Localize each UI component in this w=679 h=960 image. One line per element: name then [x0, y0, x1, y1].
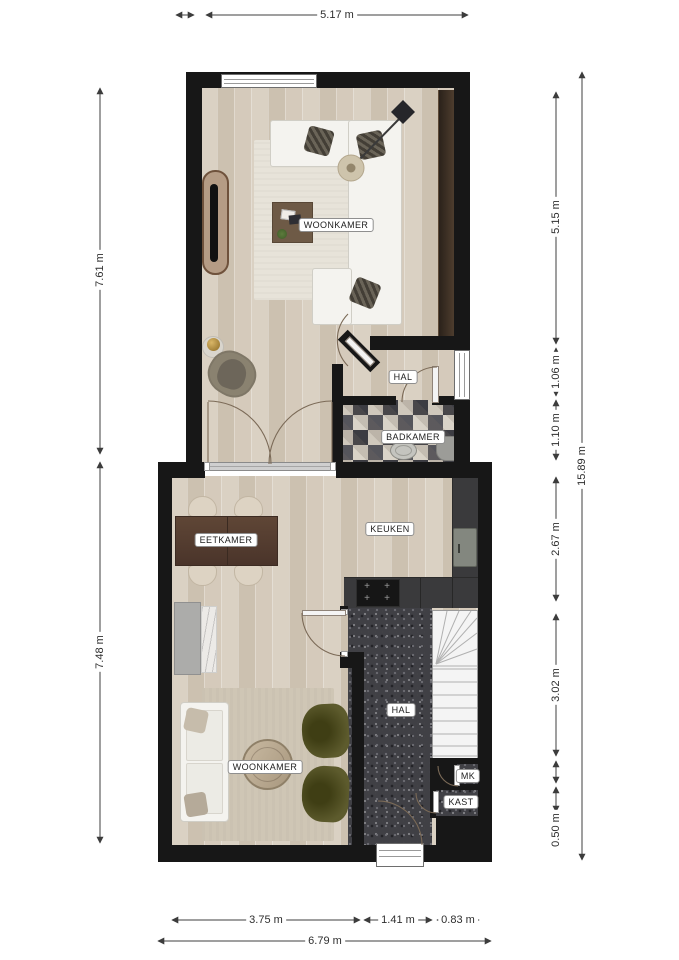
dim-right-seg-2: 1.06 m: [550, 352, 562, 392]
gold-vase: [207, 338, 220, 351]
kitchen-door-leaf: [302, 610, 346, 616]
wall-badkamer-north-left: [334, 396, 396, 405]
armchair-seat: [214, 355, 250, 392]
staircase: [432, 610, 478, 762]
room-label-woonkamer-upper: WOONKAMER: [299, 218, 374, 232]
room-label-badkamer: BADKAMER: [381, 430, 445, 444]
double-door-sill: [204, 462, 336, 471]
wall-bottom: [158, 845, 492, 862]
sink-basin: [395, 445, 412, 456]
dim-right-seg-1: 5.15 m: [550, 197, 562, 237]
window-hal: [454, 350, 470, 400]
wall-hal-top: [370, 336, 456, 350]
door-threshold-line: [379, 850, 421, 851]
wall-left-lower: [158, 462, 172, 862]
burner-icon: +: [382, 594, 392, 604]
window-pane-line: [224, 83, 314, 84]
dim-bottom-total: 6.79 m: [305, 935, 345, 947]
sofa-pillow: [183, 791, 208, 817]
dim-right-seg-5: 3.02 m: [550, 665, 562, 705]
armchair-lower: [301, 703, 351, 759]
cooktop: + + + +: [356, 579, 400, 607]
kast-door-leaf: [433, 791, 439, 813]
burner-icon: +: [362, 582, 372, 592]
sill-line: [205, 466, 335, 467]
wall-below-kast: [436, 816, 478, 845]
room-label-mk: MK: [456, 769, 480, 783]
fridge: [453, 528, 477, 567]
dim-right-total: 15.89 m: [576, 443, 588, 489]
tv-console: [202, 170, 229, 275]
corner-sofa-seat-bottom: [312, 268, 352, 325]
dim-bottom-seg-2: 1.41 m: [378, 914, 418, 926]
sofa-lower: [180, 702, 229, 822]
dim-right-seg-4: 2.67 m: [550, 519, 562, 559]
fridge-handle: [458, 544, 460, 553]
wall-right-lower: [478, 462, 492, 862]
window-pane-line: [224, 79, 314, 80]
sideboard: [174, 602, 201, 675]
burner-icon: +: [362, 594, 372, 604]
door-jamb: [204, 462, 210, 471]
tv-screen: [210, 184, 218, 262]
dim-top-width: 5.17 m: [317, 9, 357, 21]
door-jamb: [330, 462, 336, 471]
dining-chair: [234, 496, 263, 517]
dim-bottom-seg-1: 3.75 m: [246, 914, 286, 926]
room-label-kast: KAST: [443, 795, 478, 809]
dim-right-seg-3: 1.10 m: [550, 410, 562, 450]
window-top: [221, 74, 317, 88]
plant-on-table: [277, 229, 287, 239]
badkamer-door-leaf: [432, 366, 439, 403]
dim-left-upper: 7.61 m: [94, 250, 106, 290]
dim-left-lower: 7.48 m: [94, 632, 106, 672]
door-threshold-line: [379, 856, 421, 857]
room-label-keuken: KEUKEN: [365, 522, 414, 536]
wardrobe-strip: [438, 90, 455, 345]
wall-right-upper: [454, 72, 470, 464]
counter-seam: [420, 578, 421, 608]
dim-right-seg-6: 0.50 m: [550, 810, 562, 850]
counter-seam: [452, 578, 453, 608]
wall-left-upper: [186, 72, 202, 464]
room-label-woonkamer-lower: WOONKAMER: [228, 760, 303, 774]
room-label-hal-upper: HAL: [389, 370, 418, 384]
wall-hall-woonkamer: [352, 652, 364, 845]
armchair-lower: [301, 765, 351, 823]
wall-hal-left: [332, 364, 343, 464]
window-pane-line: [464, 353, 465, 397]
burner-icon: +: [382, 582, 392, 592]
marble-panel: [201, 606, 217, 673]
window-pane-line: [459, 353, 460, 397]
sofa-pillow: [356, 130, 387, 161]
kitchen-door-jamb: [341, 651, 348, 657]
room-label-hal-lower: HAL: [387, 703, 416, 717]
room-label-eetkamer: EETKAMER: [195, 533, 258, 547]
sofa-pillow: [183, 707, 209, 734]
dim-bottom-seg-3: 0.83 m: [438, 914, 478, 926]
front-door: [376, 843, 424, 867]
wall-mid-band-right: [336, 462, 492, 478]
dining-chair: [188, 496, 217, 517]
floor-plan-canvas: + + + +: [0, 0, 679, 960]
